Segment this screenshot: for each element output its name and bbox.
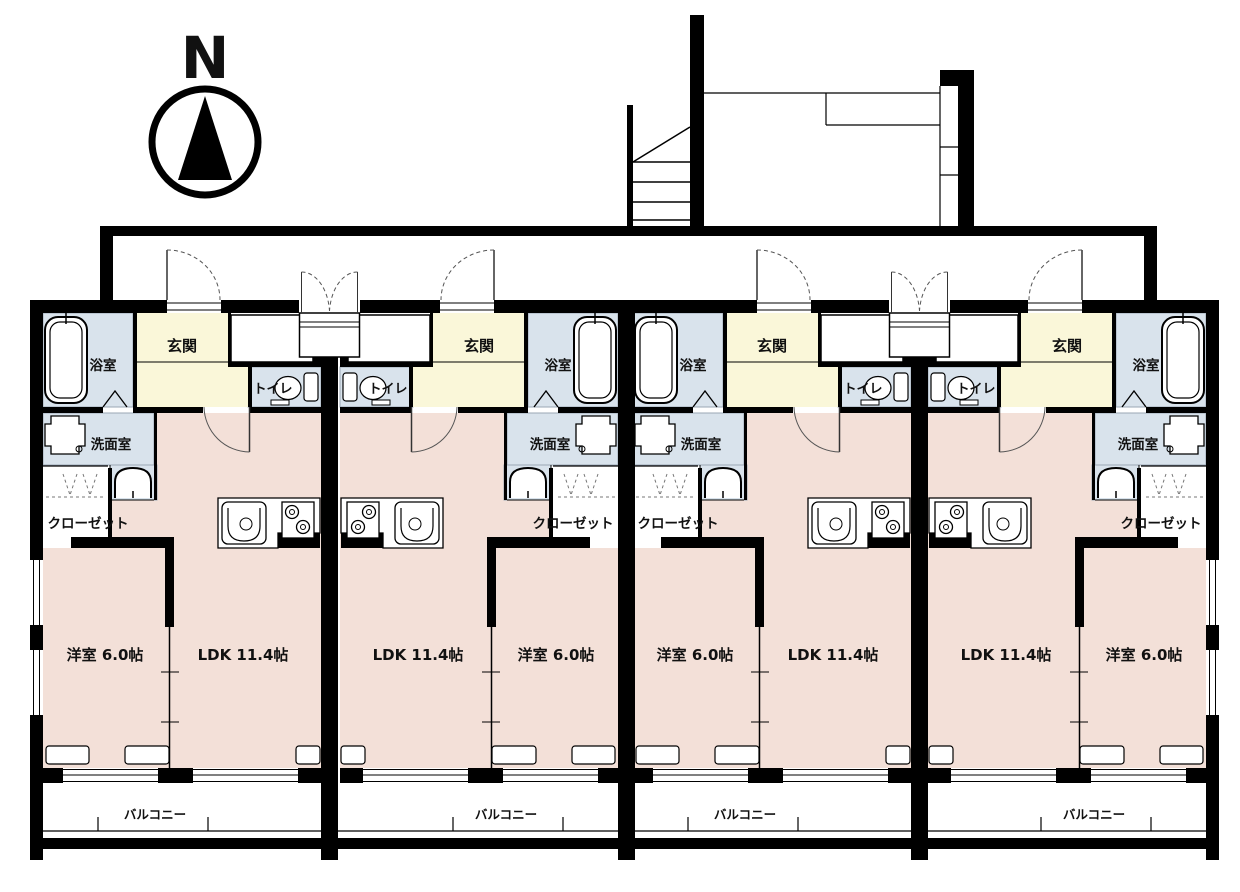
- label-toilet-unit-2: トイレ: [368, 382, 407, 397]
- floor-plan-svg: N 玄関浴室トイレ洗面室クローゼット洋室 6.0帖LDK 11.4帖バルコニー玄…: [0, 0, 1240, 892]
- label-bathroom-unit-3: 浴室: [680, 357, 708, 374]
- label-bathroom-unit-1: 浴室: [90, 357, 117, 374]
- label-closet-unit-3: クローゼット: [638, 515, 719, 532]
- north-label: N: [181, 24, 230, 92]
- label-western-room-unit-3: 洋室 6.0帖: [657, 646, 734, 664]
- label-ldk-unit-1: LDK 11.4帖: [198, 646, 289, 664]
- label-bathroom-unit-2: 浴室: [545, 357, 573, 374]
- label-balcony-unit-1: バルコニー: [124, 807, 186, 822]
- label-balcony-unit-4: バルコニー: [1063, 807, 1125, 822]
- label-western-room-unit-1: 洋室 6.0帖: [67, 646, 144, 664]
- label-ldk-unit-4: LDK 11.4帖: [961, 646, 1052, 664]
- label-washroom-unit-1: 洗面室: [91, 436, 132, 453]
- label-western-room-unit-2: 洋室 6.0帖: [518, 646, 595, 664]
- label-ldk-unit-3: LDK 11.4帖: [788, 646, 879, 664]
- label-balcony-unit-2: バルコニー: [475, 807, 537, 822]
- label-bathroom-unit-4: 浴室: [1133, 357, 1161, 374]
- label-balcony-unit-3: バルコニー: [714, 807, 776, 822]
- label-closet-unit-2: クローゼット: [533, 515, 614, 532]
- label-entrance-unit-2: 玄関: [464, 337, 494, 355]
- label-washroom-unit-2: 洗面室: [530, 436, 571, 453]
- label-western-room-unit-4: 洋室 6.0帖: [1106, 646, 1183, 664]
- label-closet-unit-1: クローゼット: [48, 515, 129, 532]
- label-closet-unit-4: クローゼット: [1121, 515, 1202, 532]
- label-entrance-unit-3: 玄関: [757, 337, 787, 355]
- label-entrance-unit-1: 玄関: [167, 337, 197, 355]
- label-washroom-unit-3: 洗面室: [681, 436, 722, 453]
- label-toilet-unit-4: トイレ: [956, 382, 995, 397]
- floor-plan-page: N 玄関浴室トイレ洗面室クローゼット洋室 6.0帖LDK 11.4帖バルコニー玄…: [0, 0, 1240, 892]
- label-washroom-unit-4: 洗面室: [1118, 436, 1159, 453]
- label-entrance-unit-4: 玄関: [1052, 337, 1082, 355]
- label-toilet-unit-1: トイレ: [253, 382, 292, 397]
- label-ldk-unit-2: LDK 11.4帖: [373, 646, 464, 664]
- label-toilet-unit-3: トイレ: [843, 382, 882, 397]
